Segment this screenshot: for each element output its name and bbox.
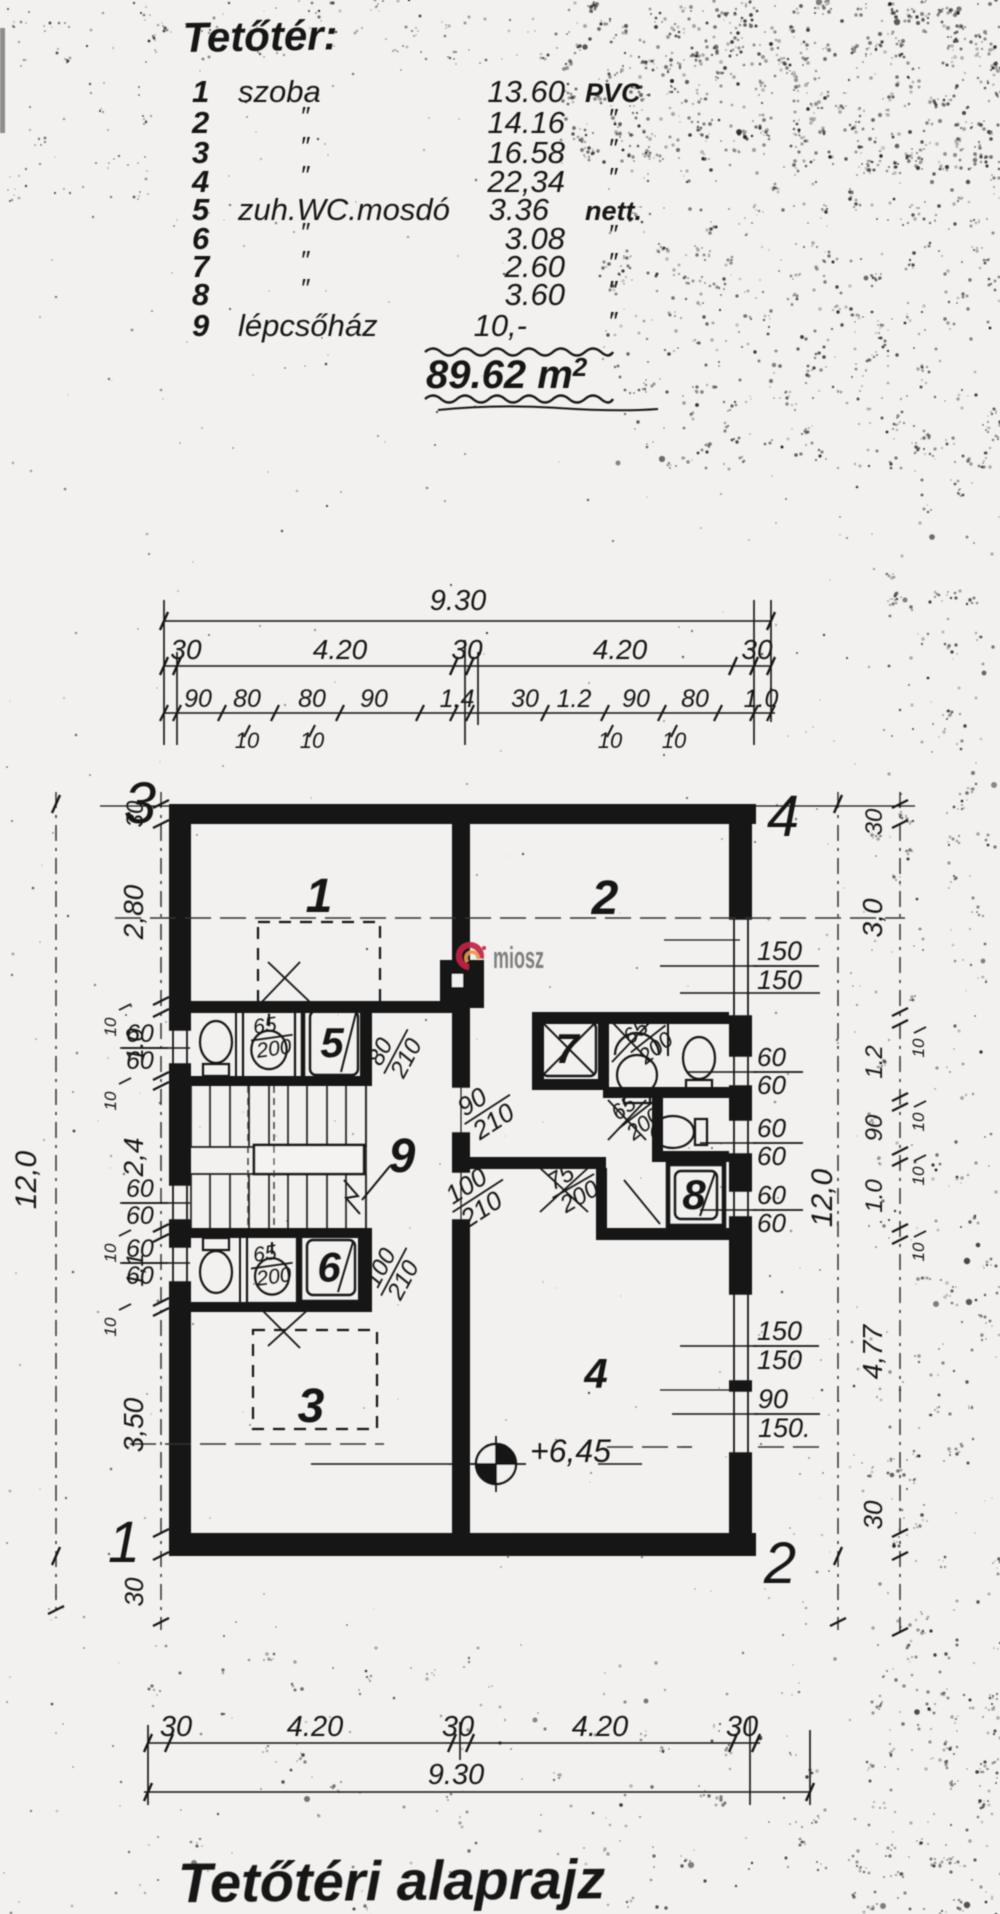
svg-text:10: 10 [909,1166,928,1185]
svg-text:10: 10 [909,1112,928,1131]
svg-text:3.60: 3.60 [505,277,565,312]
svg-text:90: 90 [360,685,388,713]
svg-text:30: 30 [119,1577,149,1606]
svg-text:30: 30 [170,634,202,665]
svg-text:7: 7 [555,1025,580,1072]
svg-text:10: 10 [909,1038,928,1057]
svg-text:4,77: 4,77 [857,1323,888,1379]
svg-text:30: 30 [511,685,539,713]
svg-text:4.20: 4.20 [313,634,368,665]
svg-text:2: 2 [591,872,619,925]
svg-text:90: 90 [184,685,212,713]
svg-text:8: 8 [682,1171,706,1218]
svg-text:80: 80 [298,685,326,713]
svg-text:4.20: 4.20 [287,1711,343,1743]
svg-text:60: 60 [757,1070,786,1100]
svg-text:Tetőtéri alaprajz: Tetőtéri alaprajz [178,1847,606,1914]
svg-text:10: 10 [909,1242,928,1261]
svg-text:Tetőtér:: Tetőtér: [182,11,338,61]
svg-text:60: 60 [126,1047,154,1075]
svg-text:miosz: miosz [493,940,544,975]
svg-text:4: 4 [767,784,799,849]
svg-text:6: 6 [317,1244,341,1291]
svg-text:″: ″ [608,103,618,133]
svg-text:2,80: 2,80 [118,884,149,940]
svg-text:150.: 150. [758,1413,811,1443]
svg-text:10: 10 [101,1243,120,1262]
svg-text:″: ″ [300,217,310,247]
svg-text:90: 90 [622,685,650,713]
svg-text:80: 80 [233,685,261,713]
svg-text:30: 30 [442,1711,474,1743]
svg-text:150: 150 [757,1316,802,1346]
svg-text:″: ″ [608,133,618,163]
svg-text:1.2: 1.2 [861,1045,888,1078]
svg-text:5: 5 [320,1019,344,1066]
svg-text:12,0: 12,0 [10,1150,43,1209]
svg-text:1.0: 1.0 [861,1179,888,1213]
svg-text:60: 60 [126,1020,154,1048]
svg-text:″: ″ [608,219,618,249]
svg-text:1: 1 [108,1510,140,1575]
svg-text:30: 30 [122,800,149,827]
svg-text:3: 3 [298,1380,325,1433]
svg-text:4.20: 4.20 [593,634,648,665]
svg-text:lépcsőház: lépcsőház [238,308,378,343]
svg-text:60: 60 [757,1141,786,1171]
svg-text:13.60: 13.60 [487,74,565,109]
svg-text:60: 60 [126,1175,154,1203]
svg-text:3,50: 3,50 [118,1397,149,1452]
svg-text:2,4: 2,4 [118,1138,149,1178]
svg-text:9.30: 9.30 [430,585,486,617]
svg-text:″: ″ [300,131,310,161]
svg-text:89.62 m2: 89.62 m2 [426,352,588,397]
svg-text:3,0: 3,0 [857,898,888,937]
svg-text:12,0: 12,0 [806,1168,839,1227]
svg-text:60: 60 [126,1235,154,1263]
svg-text:″: ″ [608,247,618,277]
svg-text:″: ″ [300,245,310,275]
svg-text:60: 60 [757,1113,786,1143]
svg-text:10: 10 [101,1317,120,1336]
svg-text:60: 60 [126,1202,154,1230]
svg-text:9: 9 [389,1130,416,1183]
svg-text:30: 30 [861,808,888,835]
svg-text:″: ″ [608,275,618,305]
svg-text:60: 60 [757,1180,786,1210]
svg-text:4.20: 4.20 [572,1711,628,1743]
svg-text:60: 60 [757,1208,786,1238]
svg-text:30: 30 [160,1711,192,1743]
svg-text:150: 150 [757,965,802,995]
svg-text:″: ″ [300,273,310,303]
svg-text:″: ″ [300,101,310,131]
svg-text:zuh.WC.mosdó: zuh.WC.mosdó [237,192,450,227]
svg-text:90: 90 [861,1114,888,1141]
svg-text:″: ″ [300,160,310,190]
svg-text:65: 65 [252,1013,279,1039]
svg-text:4: 4 [583,1350,607,1397]
svg-text:65: 65 [252,1241,279,1267]
svg-text:1.2: 1.2 [557,685,592,713]
svg-text:1: 1 [192,74,209,109]
svg-text:30: 30 [858,1500,888,1529]
svg-text:80: 80 [681,685,709,713]
svg-text:30: 30 [726,1711,758,1743]
svg-text:9.30: 9.30 [428,1759,484,1791]
svg-text:150: 150 [757,936,802,966]
svg-text:10,-: 10,- [474,308,527,343]
svg-text:90: 90 [758,1384,788,1414]
svg-text:10: 10 [101,1017,120,1036]
svg-text:9: 9 [192,308,210,343]
svg-text:″: ″ [608,306,618,336]
svg-text:1: 1 [306,870,333,923]
svg-text:″: ″ [608,162,618,192]
svg-text:2: 2 [763,1531,796,1596]
svg-text:60: 60 [126,1262,154,1290]
svg-text:150: 150 [757,1345,802,1375]
svg-text:10: 10 [101,1091,120,1110]
svg-text:60: 60 [757,1042,786,1072]
svg-text:8: 8 [192,277,210,312]
